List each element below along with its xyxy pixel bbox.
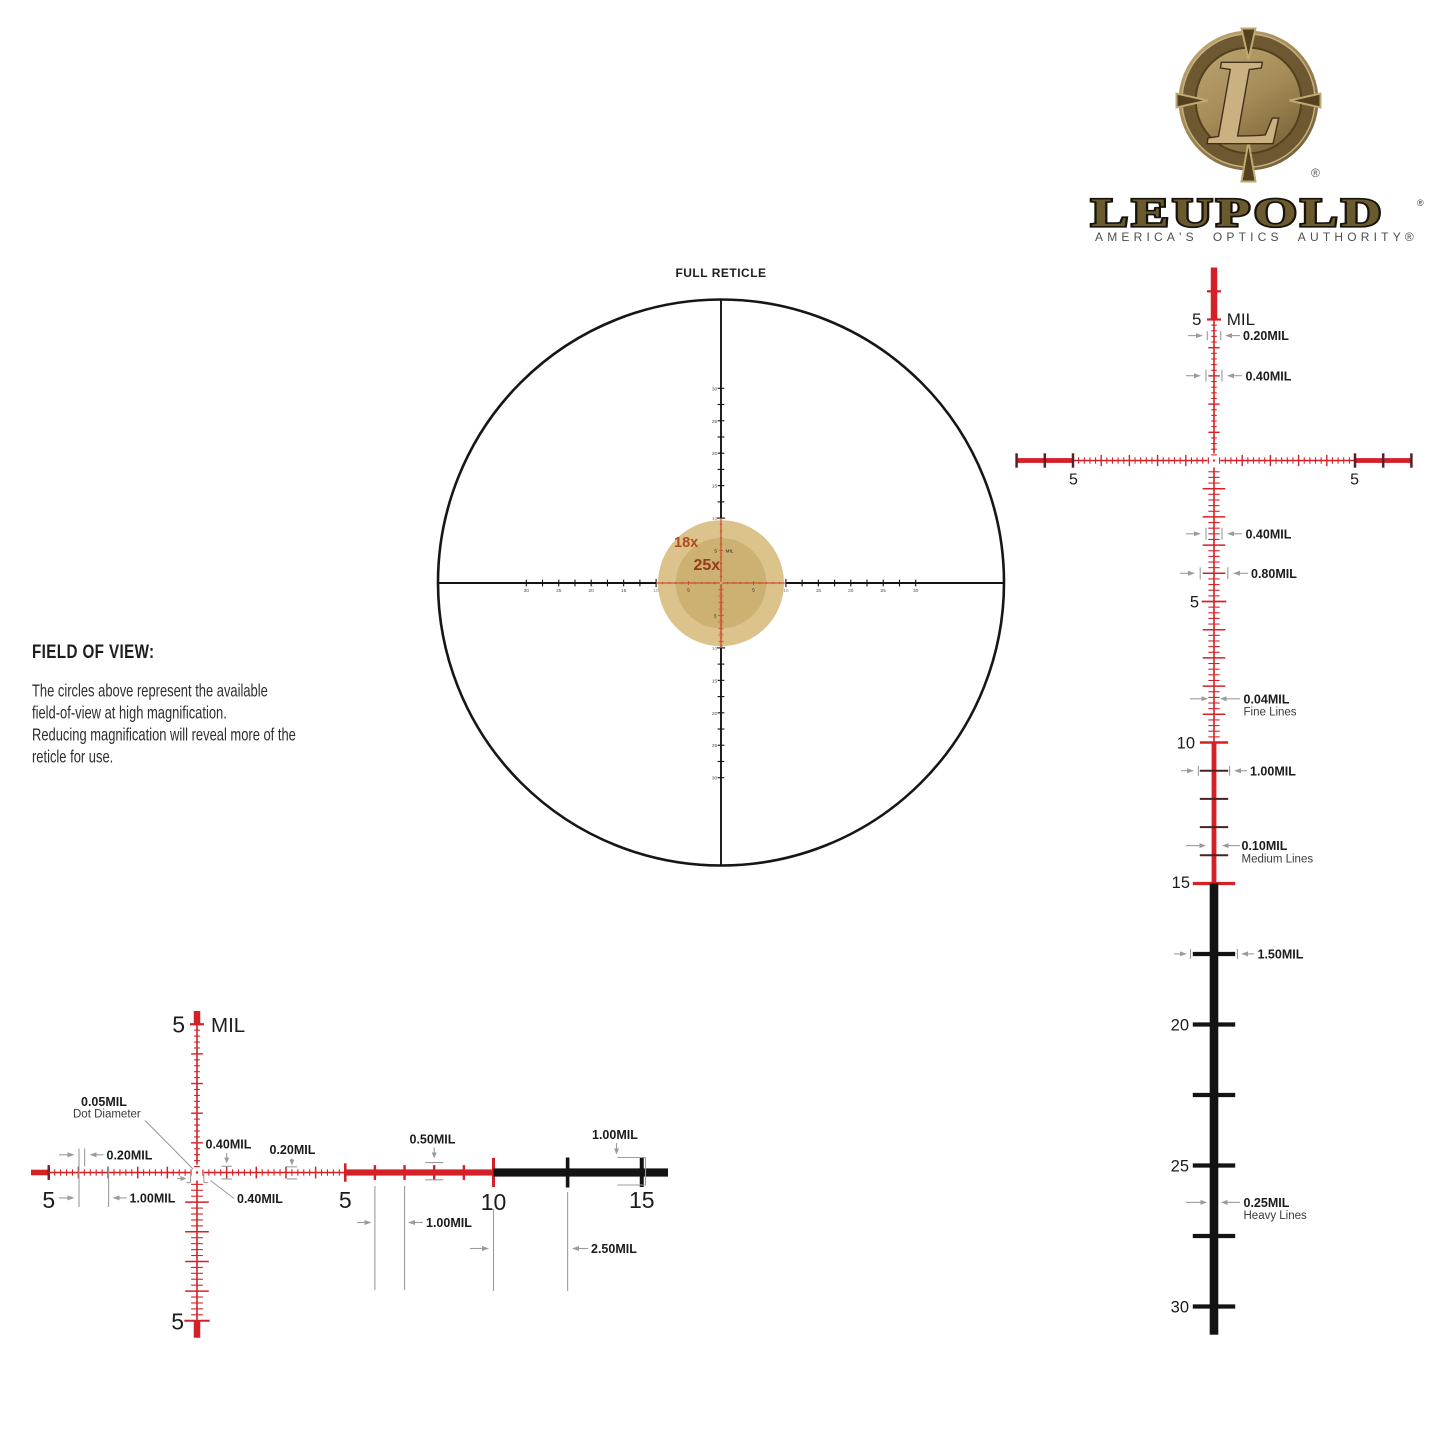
svg-text:10: 10 — [712, 516, 718, 522]
svg-text:10: 10 — [653, 588, 659, 594]
svg-text:15: 15 — [816, 588, 822, 594]
svg-text:5: 5 — [1192, 310, 1201, 329]
svg-text:Reducing magnification will re: Reducing magnification will reveal more … — [32, 726, 296, 745]
svg-text:20: 20 — [1171, 1017, 1189, 1035]
svg-text:MIL: MIL — [726, 549, 734, 555]
svg-text:0.40MIL: 0.40MIL — [1246, 527, 1292, 541]
svg-text:5: 5 — [714, 614, 717, 620]
svg-text:15: 15 — [629, 1187, 655, 1213]
svg-text:0.40MIL: 0.40MIL — [1246, 369, 1292, 383]
svg-text:25: 25 — [556, 588, 562, 594]
svg-text:®: ® — [1311, 166, 1320, 180]
svg-text:0.04MIL: 0.04MIL — [1244, 692, 1290, 706]
svg-text:15: 15 — [621, 588, 627, 594]
svg-text:5: 5 — [1190, 594, 1199, 612]
svg-text:Heavy Lines: Heavy Lines — [1244, 1210, 1308, 1222]
svg-text:18x: 18x — [674, 535, 698, 551]
svg-text:5: 5 — [339, 1187, 352, 1213]
svg-text:15: 15 — [712, 678, 718, 684]
svg-text:2.50MIL: 2.50MIL — [591, 1242, 637, 1256]
svg-text:10: 10 — [1177, 735, 1195, 753]
svg-text:0.80MIL: 0.80MIL — [1251, 567, 1297, 581]
svg-text:MIL: MIL — [1227, 310, 1255, 329]
svg-text:20: 20 — [712, 451, 718, 457]
svg-text:1.00MIL: 1.00MIL — [1250, 764, 1296, 778]
svg-text:25: 25 — [712, 419, 718, 425]
svg-text:5: 5 — [714, 549, 717, 555]
svg-text:25: 25 — [1171, 1158, 1189, 1176]
svg-text:30: 30 — [712, 386, 718, 392]
svg-text:30: 30 — [712, 776, 718, 782]
svg-text:FIELD OF VIEW:: FIELD OF VIEW: — [32, 640, 155, 662]
svg-text:0.10MIL: 0.10MIL — [1242, 839, 1288, 853]
svg-text:field-of-view at high magnific: field-of-view at high magnification. — [32, 704, 227, 723]
svg-text:MIL: MIL — [211, 1014, 245, 1037]
svg-text:0.40MIL: 0.40MIL — [237, 1192, 283, 1206]
svg-text:20: 20 — [712, 711, 718, 717]
svg-text:0.50MIL: 0.50MIL — [410, 1133, 456, 1147]
svg-text:5: 5 — [687, 588, 690, 594]
svg-text:10: 10 — [712, 646, 718, 652]
svg-text:20: 20 — [848, 588, 854, 594]
svg-text:1.50MIL: 1.50MIL — [1258, 948, 1304, 962]
svg-text:25: 25 — [712, 743, 718, 749]
svg-text:20: 20 — [589, 588, 595, 594]
svg-text:30: 30 — [1171, 1299, 1189, 1317]
svg-text:1.00MIL: 1.00MIL — [592, 1128, 638, 1142]
svg-text:1.00MIL: 1.00MIL — [426, 1216, 472, 1230]
svg-text:0.20MIL: 0.20MIL — [107, 1148, 153, 1162]
svg-text:FULL RETICLE: FULL RETICLE — [675, 266, 766, 280]
svg-text:0.40MIL: 0.40MIL — [206, 1138, 252, 1152]
svg-text:0.20MIL: 0.20MIL — [270, 1143, 316, 1157]
svg-text:5: 5 — [1069, 472, 1078, 489]
svg-text:0.25MIL: 0.25MIL — [1244, 1196, 1290, 1210]
svg-text:25: 25 — [881, 588, 887, 594]
svg-text:Medium Lines: Medium Lines — [1242, 853, 1314, 865]
svg-text:The circles above represent th: The circles above represent the availabl… — [32, 682, 268, 701]
svg-text:AMERICA'S OPTICS AUTHORITY®: AMERICA'S OPTICS AUTHORITY® — [1095, 230, 1418, 244]
svg-text:5: 5 — [752, 588, 755, 594]
svg-text:L: L — [1208, 35, 1284, 170]
svg-text:5: 5 — [1350, 472, 1359, 489]
svg-text:30: 30 — [524, 588, 530, 594]
svg-text:10: 10 — [783, 588, 789, 594]
svg-text:15: 15 — [1172, 874, 1190, 892]
svg-text:15: 15 — [712, 484, 718, 490]
svg-text:Fine Lines: Fine Lines — [1244, 707, 1297, 719]
svg-text:reticle for use.: reticle for use. — [32, 748, 113, 767]
svg-text:0.05MIL: 0.05MIL — [81, 1095, 127, 1109]
svg-text:0.20MIL: 0.20MIL — [1243, 329, 1289, 343]
svg-text:Dot Diameter: Dot Diameter — [73, 1109, 141, 1121]
svg-text:5: 5 — [42, 1187, 55, 1213]
svg-text:®: ® — [1417, 198, 1424, 208]
svg-text:5: 5 — [171, 1309, 184, 1335]
svg-text:1.00MIL: 1.00MIL — [130, 1192, 176, 1206]
svg-text:5: 5 — [172, 1012, 185, 1038]
svg-text:30: 30 — [913, 588, 919, 594]
svg-text:25x: 25x — [694, 557, 721, 574]
svg-text:LEUPOLD: LEUPOLD — [1091, 191, 1385, 235]
